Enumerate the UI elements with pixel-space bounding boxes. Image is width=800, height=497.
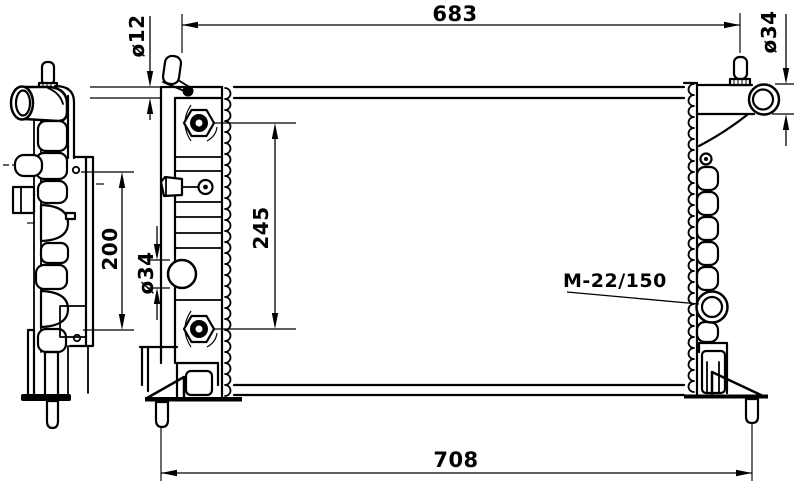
dim-label-o34-right: ø34 — [757, 10, 781, 53]
right-tank — [684, 57, 779, 423]
left-foot — [140, 347, 242, 427]
dim-side-mount-spacing: 200 — [81, 172, 134, 330]
drain-boss — [697, 292, 728, 323]
label-drain-thread: M-22/150 — [563, 270, 699, 304]
radiator-technical-drawing: 683 ø12 ø34 245 ø34 — [0, 0, 800, 497]
dim-label-o34-left: ø34 — [134, 251, 158, 294]
side-bleed-pin — [39, 62, 57, 89]
dim-bleed-pin-diameter: ø12 — [90, 14, 161, 120]
dim-label-708: 708 — [433, 448, 478, 472]
side-hose-elbow — [11, 87, 67, 122]
front-view — [140, 55, 779, 427]
left-tank-clip — [161, 177, 213, 196]
right-tank-top-pin — [730, 57, 750, 85]
lower-hex-port — [184, 311, 217, 347]
right-core-serration — [689, 83, 698, 396]
left-tank-top-pin — [162, 55, 193, 96]
left-core-serration — [222, 87, 231, 398]
right-tank-rivet — [701, 154, 712, 165]
right-tank-shoulder — [699, 115, 747, 146]
dim-label-o12: ø12 — [125, 14, 149, 57]
dim-label-683: 683 — [432, 2, 477, 26]
upper-hex-port — [184, 105, 217, 141]
left-outlet-port — [168, 260, 196, 288]
core — [234, 87, 684, 395]
side-view — [3, 62, 104, 428]
dim-label-200: 200 — [98, 227, 122, 270]
dim-label-m22: M-22/150 — [563, 270, 667, 292]
dim-label-245: 245 — [249, 206, 273, 249]
dim-bottom-width: 708 — [161, 424, 752, 481]
right-inlet-hose — [697, 85, 779, 115]
dim-left-outlet-diameter: ø34 — [134, 226, 170, 320]
drawing-canvas: 683 ø12 ø34 245 ø34 — [0, 0, 800, 497]
dim-right-inlet-diameter: ø34 — [757, 10, 794, 146]
dim-top-width: 683 — [182, 2, 740, 53]
